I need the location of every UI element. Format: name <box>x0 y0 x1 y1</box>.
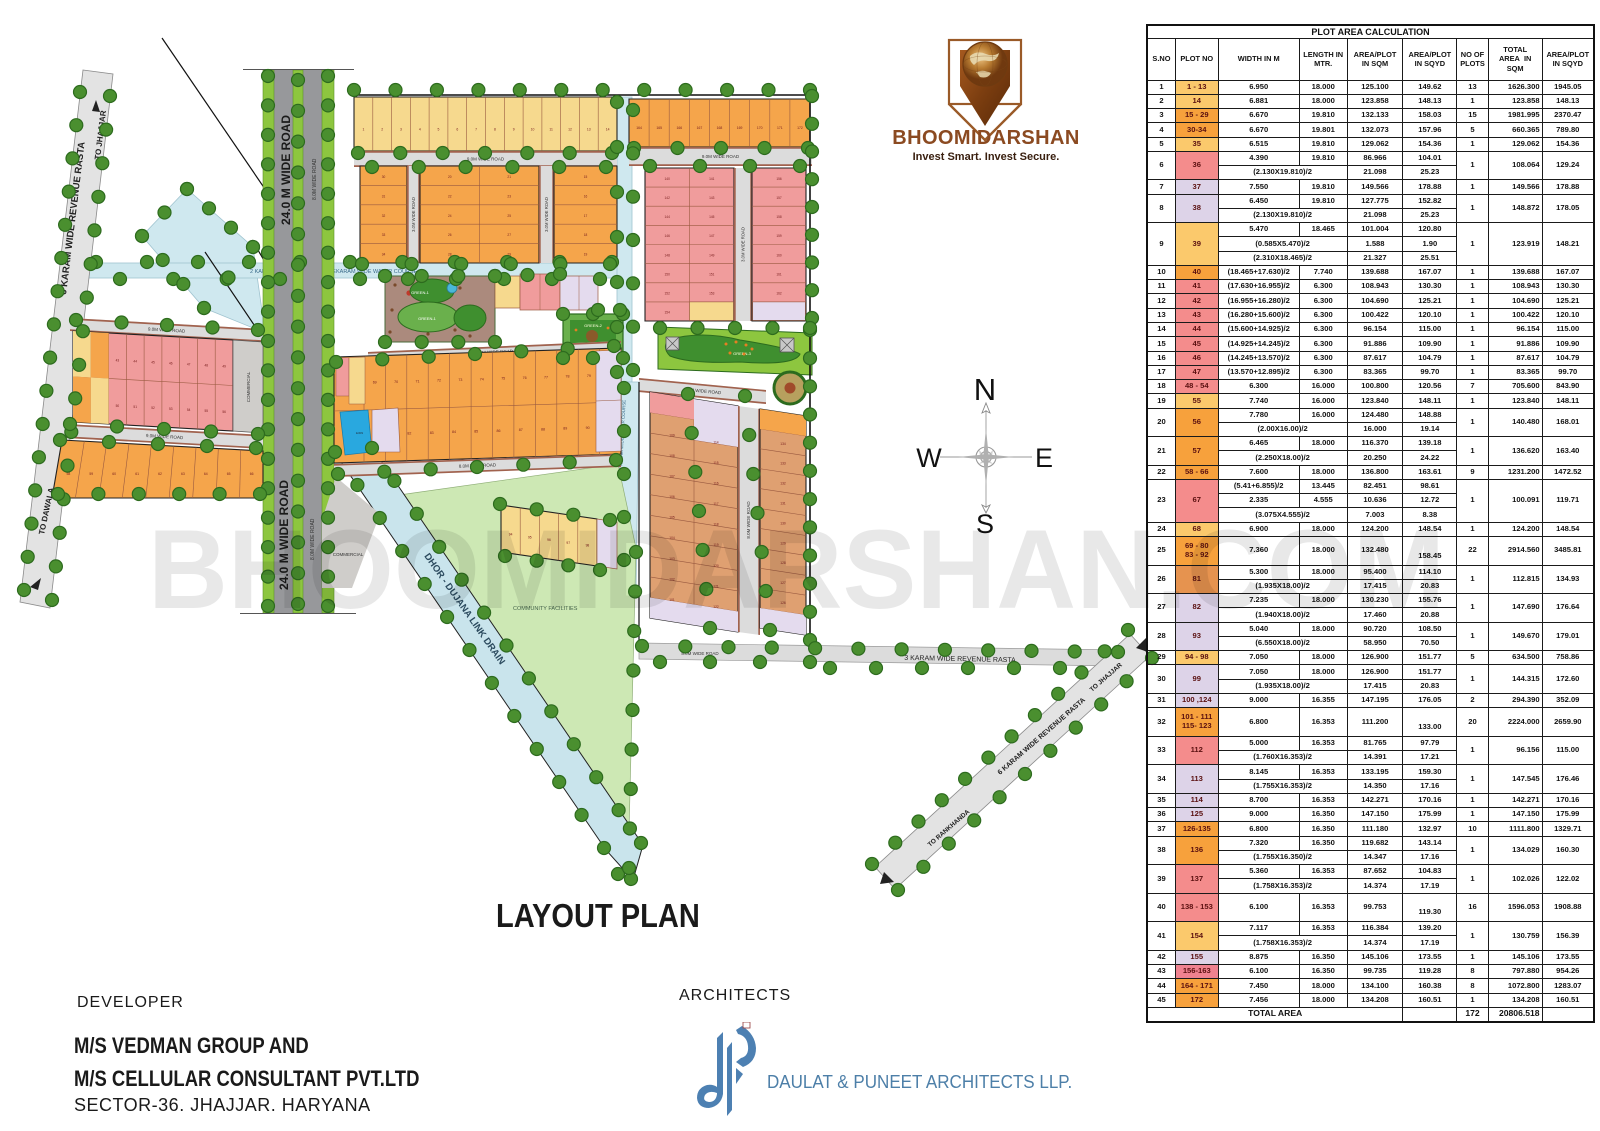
svg-text:147: 147 <box>709 234 715 238</box>
svg-text:150: 150 <box>665 273 671 277</box>
svg-text:159: 159 <box>776 234 782 238</box>
svg-text:127: 127 <box>780 581 786 585</box>
svg-text:133: 133 <box>780 462 786 466</box>
svg-text:105: 105 <box>669 516 675 520</box>
svg-text:102: 102 <box>669 577 675 581</box>
svg-text:85: 85 <box>474 430 478 434</box>
svg-text:84: 84 <box>452 430 456 434</box>
svg-text:157: 157 <box>776 196 782 200</box>
svg-text:E: E <box>1035 443 1053 473</box>
svg-text:64: 64 <box>204 472 208 476</box>
svg-text:7: 7 <box>475 128 477 132</box>
svg-text:49: 49 <box>222 365 226 369</box>
svg-text:162: 162 <box>776 292 782 296</box>
svg-text:167: 167 <box>697 126 703 130</box>
svg-text:128: 128 <box>780 561 786 565</box>
svg-text:121: 121 <box>713 584 719 588</box>
svg-text:61: 61 <box>135 472 139 476</box>
svg-text:50: 50 <box>116 404 120 408</box>
svg-text:83: 83 <box>430 431 434 435</box>
svg-text:95: 95 <box>528 535 532 539</box>
svg-text:108: 108 <box>669 454 675 458</box>
svg-text:GREEN-1: GREEN-1 <box>411 290 430 295</box>
svg-text:89: 89 <box>563 427 567 431</box>
svg-text:6: 6 <box>456 128 458 132</box>
svg-text:69: 69 <box>373 381 377 385</box>
svg-text:156: 156 <box>776 177 782 181</box>
svg-text:88: 88 <box>541 427 545 431</box>
svg-text:143: 143 <box>709 196 715 200</box>
svg-text:90: 90 <box>586 426 590 430</box>
svg-text:15: 15 <box>584 175 588 179</box>
svg-text:31: 31 <box>382 194 386 198</box>
svg-text:65: 65 <box>227 472 231 476</box>
svg-text:GREEN-1: GREEN-1 <box>418 316 437 321</box>
svg-text:87: 87 <box>519 428 523 432</box>
svg-text:149: 149 <box>709 253 715 257</box>
svg-text:142: 142 <box>665 196 671 200</box>
svg-text:COMMUNITY FACILITIES: COMMUNITY FACILITIES <box>513 606 578 612</box>
svg-text:78: 78 <box>566 375 570 379</box>
svg-text:172: 172 <box>797 126 803 130</box>
svg-text:8.0M WIDE ROAD: 8.0M WIDE ROAD <box>312 158 318 200</box>
svg-text:154: 154 <box>665 311 671 315</box>
svg-text:66: 66 <box>250 472 254 476</box>
svg-text:71: 71 <box>416 379 420 383</box>
svg-text:126: 126 <box>780 601 786 605</box>
svg-text:140: 140 <box>665 177 671 181</box>
svg-text:130: 130 <box>780 521 786 525</box>
svg-text:141: 141 <box>709 177 715 181</box>
svg-text:77: 77 <box>544 375 548 379</box>
svg-text:60: 60 <box>112 472 116 476</box>
svg-text:16: 16 <box>584 194 588 198</box>
svg-text:1: 1 <box>362 128 364 132</box>
svg-text:46: 46 <box>169 362 173 366</box>
svg-text:34: 34 <box>382 253 386 257</box>
svg-text:107: 107 <box>669 475 675 479</box>
svg-text:129: 129 <box>780 541 786 545</box>
svg-text:166: 166 <box>676 126 682 130</box>
svg-text:96: 96 <box>547 538 551 542</box>
svg-text:24: 24 <box>448 214 452 218</box>
svg-text:3.0M WIDE ROAD: 3.0M WIDE ROAD <box>411 197 416 232</box>
svg-text:13: 13 <box>587 128 591 132</box>
svg-text:122: 122 <box>713 605 719 609</box>
svg-text:97: 97 <box>566 541 570 545</box>
svg-text:8: 8 <box>494 128 496 132</box>
svg-text:134: 134 <box>780 442 786 446</box>
svg-text:56: 56 <box>222 410 226 414</box>
svg-text:51: 51 <box>133 405 137 409</box>
svg-text:63: 63 <box>181 472 185 476</box>
svg-text:94: 94 <box>509 533 513 537</box>
svg-text:115: 115 <box>713 461 718 465</box>
svg-text:169: 169 <box>737 126 743 130</box>
svg-text:55: 55 <box>205 409 209 413</box>
svg-text:9: 9 <box>513 128 515 132</box>
svg-text:24.0 M WIDE ROAD: 24.0 M WIDE ROAD <box>277 480 291 590</box>
svg-text:161: 161 <box>776 273 782 277</box>
svg-text:104: 104 <box>669 536 675 540</box>
svg-text:82: 82 <box>407 432 411 436</box>
svg-text:26: 26 <box>448 233 452 237</box>
svg-text:5: 5 <box>438 128 440 132</box>
svg-text:144: 144 <box>665 215 671 219</box>
svg-text:170: 170 <box>757 126 763 130</box>
svg-text:101: 101 <box>669 598 675 602</box>
svg-text:53: 53 <box>169 407 173 411</box>
svg-text:160: 160 <box>776 253 782 257</box>
svg-text:27: 27 <box>507 233 511 237</box>
svg-text:54: 54 <box>187 408 191 412</box>
svg-text:3.0M WIDE ROAD: 3.0M WIDE ROAD <box>741 227 746 262</box>
svg-text:12: 12 <box>568 128 572 132</box>
svg-text:GREEN-3: GREEN-3 <box>733 351 752 356</box>
svg-text:146: 146 <box>665 234 671 238</box>
svg-text:73: 73 <box>458 378 462 382</box>
svg-text:75: 75 <box>501 377 505 381</box>
svg-text:165: 165 <box>656 126 662 130</box>
svg-text:79: 79 <box>587 374 591 378</box>
svg-text:17: 17 <box>584 214 588 218</box>
svg-text:48: 48 <box>205 364 209 368</box>
svg-text:103: 103 <box>669 557 675 561</box>
svg-text:11: 11 <box>549 128 553 132</box>
svg-text:COMMERCIAL: COMMERCIAL <box>333 552 364 557</box>
svg-text:148: 148 <box>665 253 671 257</box>
svg-text:109: 109 <box>669 434 675 438</box>
svg-text:62: 62 <box>158 472 162 476</box>
svg-text:8.0M WIDE ROAD: 8.0M WIDE ROAD <box>746 501 751 539</box>
svg-text:118: 118 <box>713 523 718 527</box>
svg-text:S: S <box>976 509 994 539</box>
svg-text:117: 117 <box>713 502 718 506</box>
svg-text:145: 145 <box>709 215 715 219</box>
svg-text:4: 4 <box>419 128 421 132</box>
svg-text:23: 23 <box>507 194 511 198</box>
svg-text:20: 20 <box>448 175 452 179</box>
svg-text:19: 19 <box>584 253 588 257</box>
svg-text:8.0M WIDE ROAD: 8.0M WIDE ROAD <box>310 518 316 560</box>
svg-text:18: 18 <box>584 233 588 237</box>
svg-text:106: 106 <box>669 495 675 499</box>
svg-text:3.0M WIDE ROAD: 3.0M WIDE ROAD <box>544 197 549 232</box>
svg-text:59: 59 <box>89 472 93 476</box>
svg-text:114: 114 <box>713 441 718 445</box>
svg-text:Invest Smart. Invest Secure.: Invest Smart. Invest Secure. <box>913 151 1060 163</box>
svg-text:3: 3 <box>400 128 402 132</box>
svg-text:74: 74 <box>480 377 484 381</box>
svg-text:COMMERCIAL: COMMERCIAL <box>246 371 251 402</box>
svg-text:33: 33 <box>382 233 386 237</box>
svg-text:14: 14 <box>606 128 610 132</box>
svg-text:152: 152 <box>665 292 671 296</box>
svg-text:24.0 M WIDE ROAD: 24.0 M WIDE ROAD <box>279 115 293 225</box>
svg-text:2: 2 <box>381 128 383 132</box>
svg-text:131: 131 <box>780 502 786 506</box>
svg-text:10: 10 <box>531 128 535 132</box>
svg-text:153: 153 <box>709 292 715 296</box>
svg-text:119: 119 <box>713 543 718 547</box>
svg-text:158: 158 <box>776 215 782 219</box>
svg-text:47: 47 <box>187 363 191 367</box>
svg-text:132: 132 <box>780 482 786 486</box>
svg-text:70: 70 <box>394 380 398 384</box>
svg-text:BHOOMIDARSHAN: BHOOMIDARSHAN <box>892 127 1079 149</box>
svg-text:52: 52 <box>151 406 155 410</box>
svg-text:86: 86 <box>497 429 501 433</box>
svg-text:164: 164 <box>636 126 642 130</box>
svg-text:30: 30 <box>382 175 386 179</box>
svg-text:171: 171 <box>777 126 783 130</box>
svg-text:N: N <box>974 372 996 407</box>
svg-text:168: 168 <box>717 126 723 130</box>
svg-text:120: 120 <box>713 564 719 568</box>
svg-text:98: 98 <box>586 544 590 548</box>
svg-text:72: 72 <box>437 379 441 383</box>
svg-text:32: 32 <box>382 214 386 218</box>
svg-text:21: 21 <box>507 175 511 179</box>
svg-text:45: 45 <box>151 361 155 365</box>
svg-text:44: 44 <box>133 360 137 364</box>
svg-text:22: 22 <box>448 194 452 198</box>
svg-text:151: 151 <box>709 273 715 277</box>
svg-text:W: W <box>916 443 942 473</box>
svg-text:116: 116 <box>713 482 718 486</box>
svg-text:E309: E309 <box>356 431 363 435</box>
svg-text:76: 76 <box>523 376 527 380</box>
svg-text:25: 25 <box>507 214 511 218</box>
svg-text:43: 43 <box>116 359 120 363</box>
svg-text:GREEN-2: GREEN-2 <box>584 323 603 328</box>
